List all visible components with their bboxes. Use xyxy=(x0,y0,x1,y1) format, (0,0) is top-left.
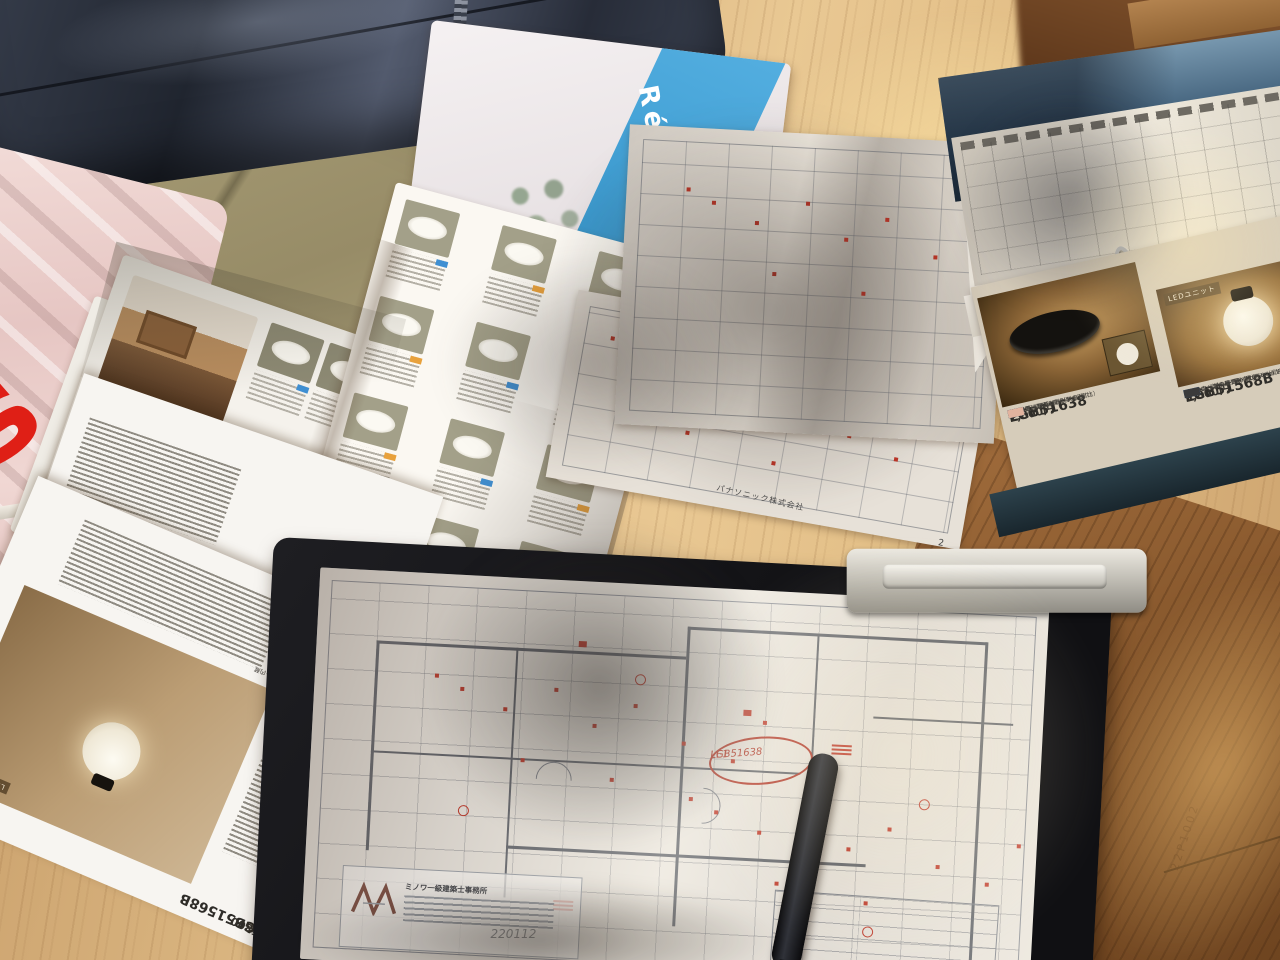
led-unit-chip: LEDユニット xyxy=(1163,282,1221,306)
clipboard-plan-sheet: LGB51638 LE1 ミノワ一級建築士事務所 220112 xyxy=(300,567,1050,960)
clipboard-clip xyxy=(847,549,1147,613)
product-thumbnail xyxy=(479,223,561,322)
plan-sheet-top xyxy=(614,124,1009,443)
clipboard: LGB51638 LE1 ミノワ一級建築士事務所 220112 xyxy=(233,498,1157,960)
red-annotations xyxy=(610,336,615,341)
globe-lamp xyxy=(73,713,149,789)
jacket-sheen xyxy=(42,0,472,108)
spec-binder: LGB51638LE1 7,800円 LED内蔵・電源ユニット内蔵 幅φ130・… xyxy=(938,25,1280,494)
red-annotations xyxy=(687,187,691,191)
globe-lamp-photo: LEDユニット xyxy=(1156,251,1280,387)
black-disc-light xyxy=(1005,302,1104,362)
globe-lamp xyxy=(1218,291,1278,351)
clip-lever xyxy=(883,565,1107,589)
inset-photo xyxy=(1102,330,1153,377)
product-panel-lgb51568b: LEDユニット LGB51568BCE1 9,800円 LEDユニット内蔵1個・… xyxy=(1156,251,1280,457)
photo-scene: 22P1002 ns RéSERVE xyxy=(0,0,1280,960)
paper-lighting xyxy=(300,567,1050,960)
plan-linework xyxy=(629,139,995,429)
led-unit-chip: LEDユニット xyxy=(0,761,11,794)
